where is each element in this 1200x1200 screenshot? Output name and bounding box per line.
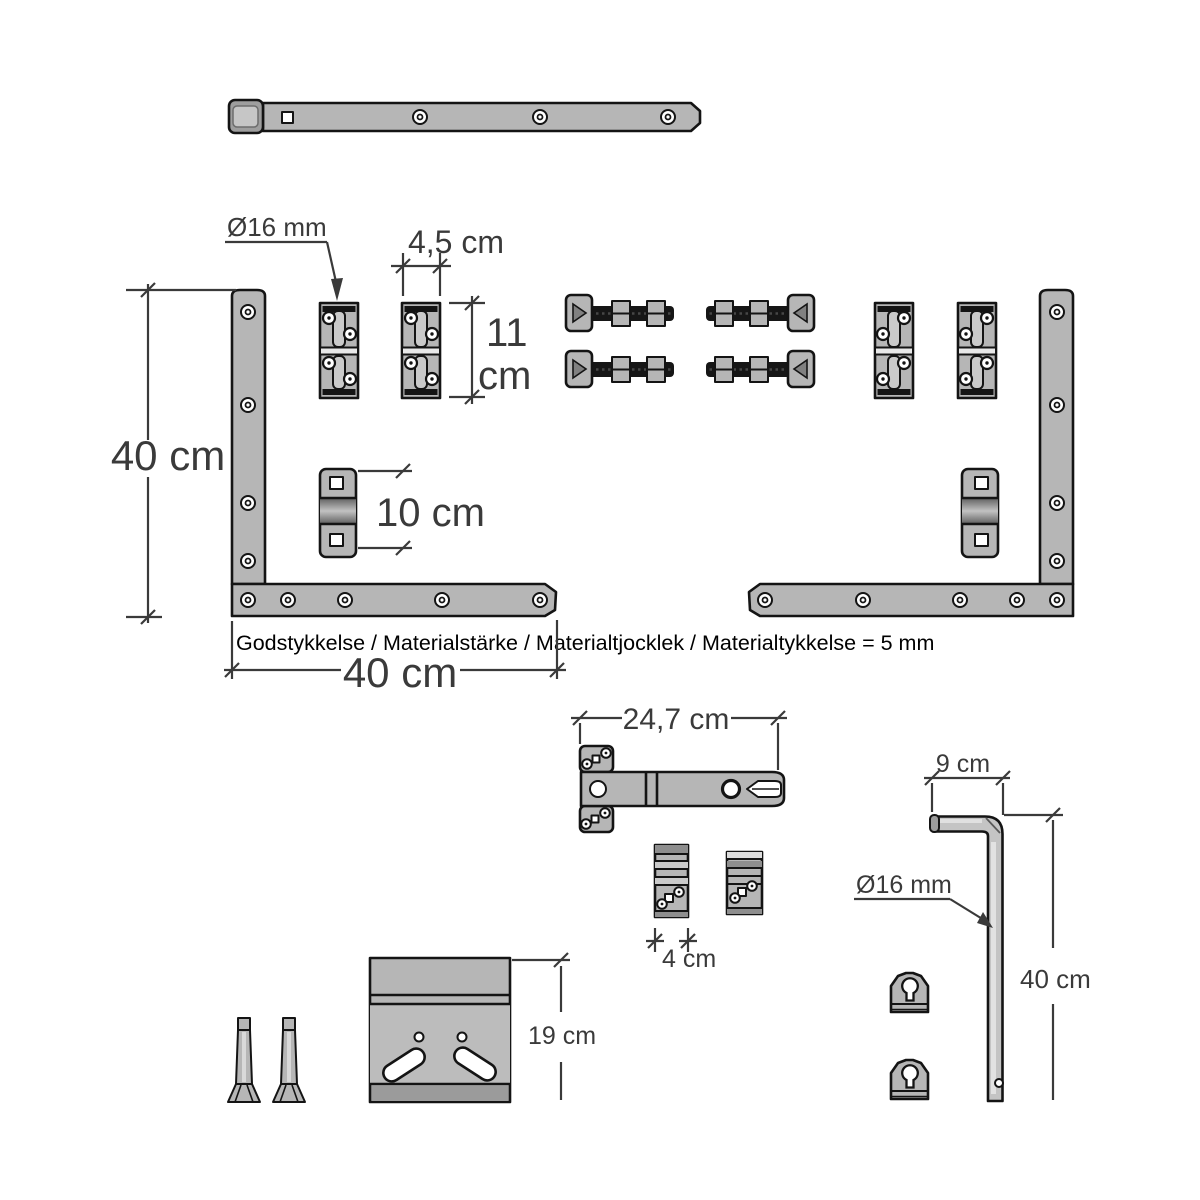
hinge-body-1	[320, 303, 358, 398]
dim-mount-plate-height: 19 cm	[512, 953, 596, 1100]
strap-square-hole	[282, 112, 293, 123]
t-hinge-assembly	[580, 746, 784, 832]
hinge-width-label: 4,5 cm	[408, 224, 504, 260]
long-hinge-strap	[229, 100, 700, 133]
pin-diameter-top-label: Ø16 mm	[227, 212, 327, 242]
dim-pin-diameter-bottom: Ø16 mm	[854, 871, 993, 928]
wall-plate-right	[962, 469, 998, 557]
bolt-2	[566, 351, 674, 387]
hinge-body-4	[958, 303, 996, 398]
wall-plate-length-label: 10 cm	[376, 491, 485, 535]
hinge-height-value-label: 11	[486, 311, 528, 355]
hardware-kit-diagram: Ø16 mm 4,5 cm	[0, 0, 1200, 1200]
dim-hook-arm-length: 9 cm	[924, 750, 1010, 815]
dim-wall-plate-length: 10 cm	[358, 464, 485, 555]
hook-pin-length-label: 40 cm	[1020, 964, 1091, 994]
wall-plate-left	[320, 469, 356, 557]
material-thickness-note: Godstykkelse / Materialstärke / Material…	[236, 631, 934, 655]
hinge-body-2	[402, 303, 440, 398]
keyhole-plate-1	[891, 973, 928, 1012]
keyhole-plate-2	[891, 1060, 928, 1099]
mount-plate-height-label: 19 cm	[528, 1022, 596, 1050]
hook-pin-cap	[930, 815, 939, 832]
dim-frame-height: 40 cm	[111, 283, 236, 624]
diagram-canvas: Ø16 mm 4,5 cm	[0, 0, 1200, 1200]
pin-diameter-bottom-label: Ø16 mm	[856, 871, 952, 899]
strap-pin-hole	[723, 781, 740, 798]
clip-width-label: 4 cm	[662, 945, 716, 973]
bolt-3	[706, 295, 814, 331]
hook-pin	[930, 815, 1003, 1101]
bolt-4	[706, 351, 814, 387]
hinge-body-3	[875, 303, 913, 398]
dim-pin-diameter-top: Ø16 mm	[225, 212, 343, 301]
hinge-height-unit-label: cm	[478, 354, 531, 398]
bolt-1	[566, 295, 674, 331]
frame-width-label: 40 cm	[343, 649, 457, 696]
leader-arrow-icon	[331, 278, 343, 301]
dim-hinge-width: 4,5 cm	[391, 224, 504, 296]
mount-plate	[370, 958, 510, 1102]
strap-round-hole	[590, 781, 606, 797]
frame-height-label: 40 cm	[111, 432, 225, 479]
clip-left	[655, 845, 688, 917]
clip-right	[727, 852, 762, 914]
dim-hinge-height: 11 cm	[449, 296, 531, 404]
adjuster-bolt-set	[566, 295, 814, 387]
ground-spike-1	[228, 1018, 260, 1102]
hook-arm-length-label: 9 cm	[936, 750, 990, 778]
dim-hook-pin-length: 40 cm	[1004, 808, 1091, 1100]
hook-pin-hole	[995, 1079, 1003, 1087]
ground-spike-2	[273, 1018, 305, 1102]
strap-length-label: 24,7 cm	[623, 703, 730, 736]
dim-clip-width: 4 cm	[646, 928, 716, 973]
